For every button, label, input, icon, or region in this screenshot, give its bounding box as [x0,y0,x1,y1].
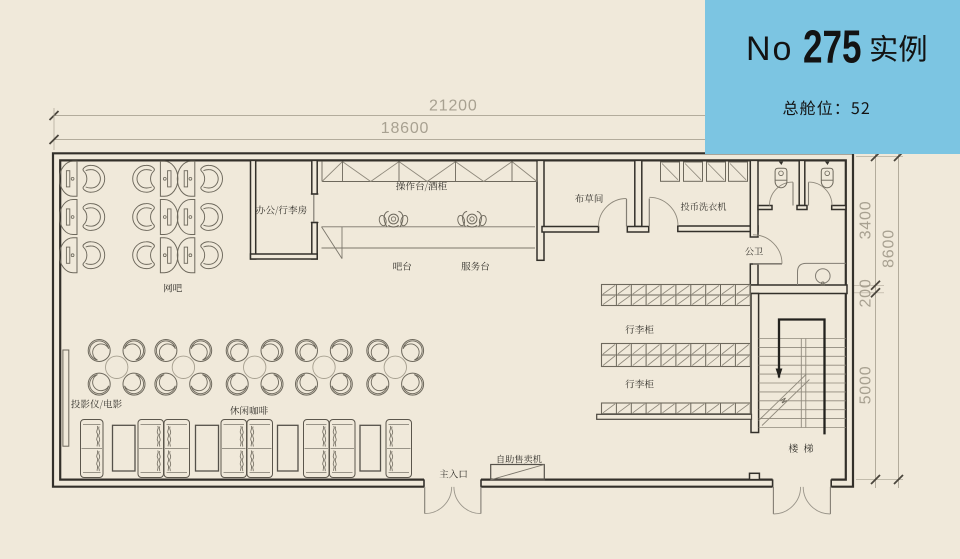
svg-text:18600: 18600 [381,120,430,137]
svg-text:275: 275 [803,21,862,73]
svg-text:200: 200 [858,278,875,307]
svg-text:8600: 8600 [881,229,898,268]
svg-text:21200: 21200 [429,98,478,115]
svg-text:No: No [746,30,793,68]
svg-text:5000: 5000 [858,366,875,405]
svg-text:3400: 3400 [858,201,875,240]
